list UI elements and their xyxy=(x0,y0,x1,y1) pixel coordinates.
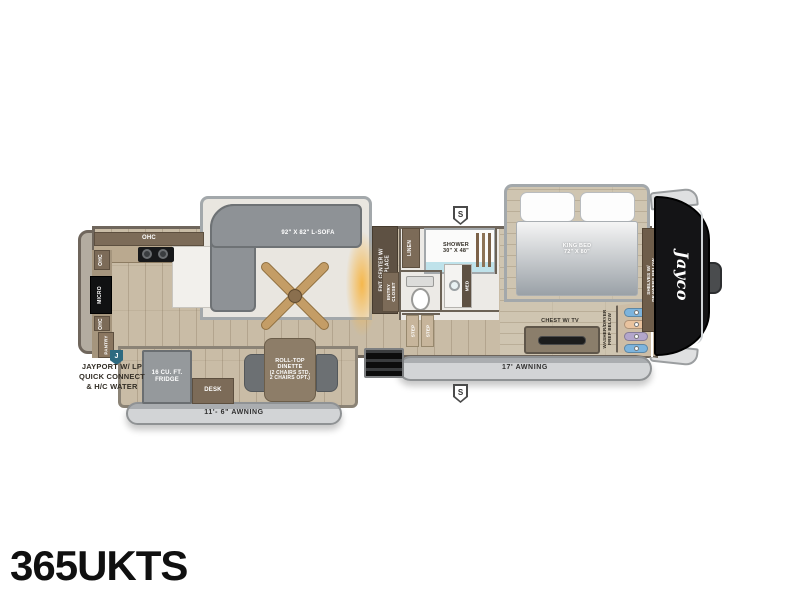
overhead-cabinet-lower: OHC xyxy=(94,316,110,331)
entry-closet-label: CLOSET xyxy=(391,282,396,301)
step-2: STEP xyxy=(421,315,434,347)
shelves-label: SHELVES W/ xyxy=(645,258,650,302)
washer-dryer-note: WASHER/DRYER PREP BELOW xyxy=(596,300,618,358)
desk: DESK xyxy=(192,378,234,404)
microwave: MICRO xyxy=(90,276,112,314)
pillow xyxy=(520,192,575,222)
dinette-chair-left xyxy=(244,354,266,392)
wall xyxy=(399,270,442,272)
wall xyxy=(440,270,442,312)
hanger-icon xyxy=(624,344,648,353)
sofa-label: 92" X 82" L-SOFA xyxy=(252,230,364,237)
bed-label: 72" X 80" xyxy=(540,249,614,255)
linen-cabinet: LINEN xyxy=(402,228,420,268)
dinette-label: 2 CHAIRS OPT.) xyxy=(270,376,311,382)
floorplan-canvas: OHC OHC MICRO OHC PANTRY 16 CU. FT. FRID… xyxy=(0,0,800,600)
ohc-label: OHC xyxy=(99,254,105,266)
wall xyxy=(399,228,401,320)
mattress xyxy=(516,221,638,296)
vanity-sink: MED xyxy=(444,264,472,308)
shower-label: 30" X 48" xyxy=(430,248,482,254)
wall xyxy=(399,310,499,312)
entry-closet: ENTRY CLOSET xyxy=(382,272,399,312)
shower-door xyxy=(488,233,491,267)
med-cabinet-label: MED xyxy=(464,281,469,292)
front-cap: Jayco xyxy=(654,196,710,356)
speaker-marker-bottom: S xyxy=(453,384,468,403)
overhead-cabinet-top: OHC xyxy=(94,232,204,246)
sink-icon xyxy=(449,280,460,291)
jayport-note: JAYPORT W/ LP QUICK CONNECT & H/C WATER xyxy=(60,362,164,391)
step-label: STEP xyxy=(410,325,415,338)
entry-steps xyxy=(364,348,404,378)
chest-with-tv xyxy=(524,326,600,354)
chest-tv-label: CHEST W/ TV xyxy=(520,318,600,324)
wall xyxy=(495,228,497,274)
ohc-label: OHC xyxy=(99,318,105,330)
entry-closet-label: ENTRY xyxy=(385,282,390,301)
speaker-marker-top: S xyxy=(453,206,468,225)
awning-main: 17' AWNING xyxy=(398,356,652,381)
pillow xyxy=(580,192,635,222)
hanger-icon xyxy=(624,332,648,341)
linen-label: LINEN xyxy=(408,240,414,256)
pantry-label: PANTRY xyxy=(103,335,108,354)
micro-label: MICRO xyxy=(98,286,104,304)
awning-rear: 11'- 6" AWNING xyxy=(126,402,342,425)
floorplan-title: 365UKTS xyxy=(10,542,187,590)
step-1: STEP xyxy=(406,315,419,347)
step-label: STEP xyxy=(425,325,430,338)
dinette-chair-right xyxy=(316,354,338,392)
tv-icon xyxy=(538,336,586,345)
jayco-logo: Jayco xyxy=(673,251,691,301)
desk-label: DESK xyxy=(204,387,221,394)
cooktop-icon xyxy=(138,247,174,262)
overhead-cabinet-upper: OHC xyxy=(94,250,110,270)
ohc-label: OHC xyxy=(142,235,156,242)
sofa xyxy=(210,204,362,248)
dinette-table: ROLL-TOP DINETTE (2 CHAIRS STD, 2 CHAIRS… xyxy=(264,338,316,402)
